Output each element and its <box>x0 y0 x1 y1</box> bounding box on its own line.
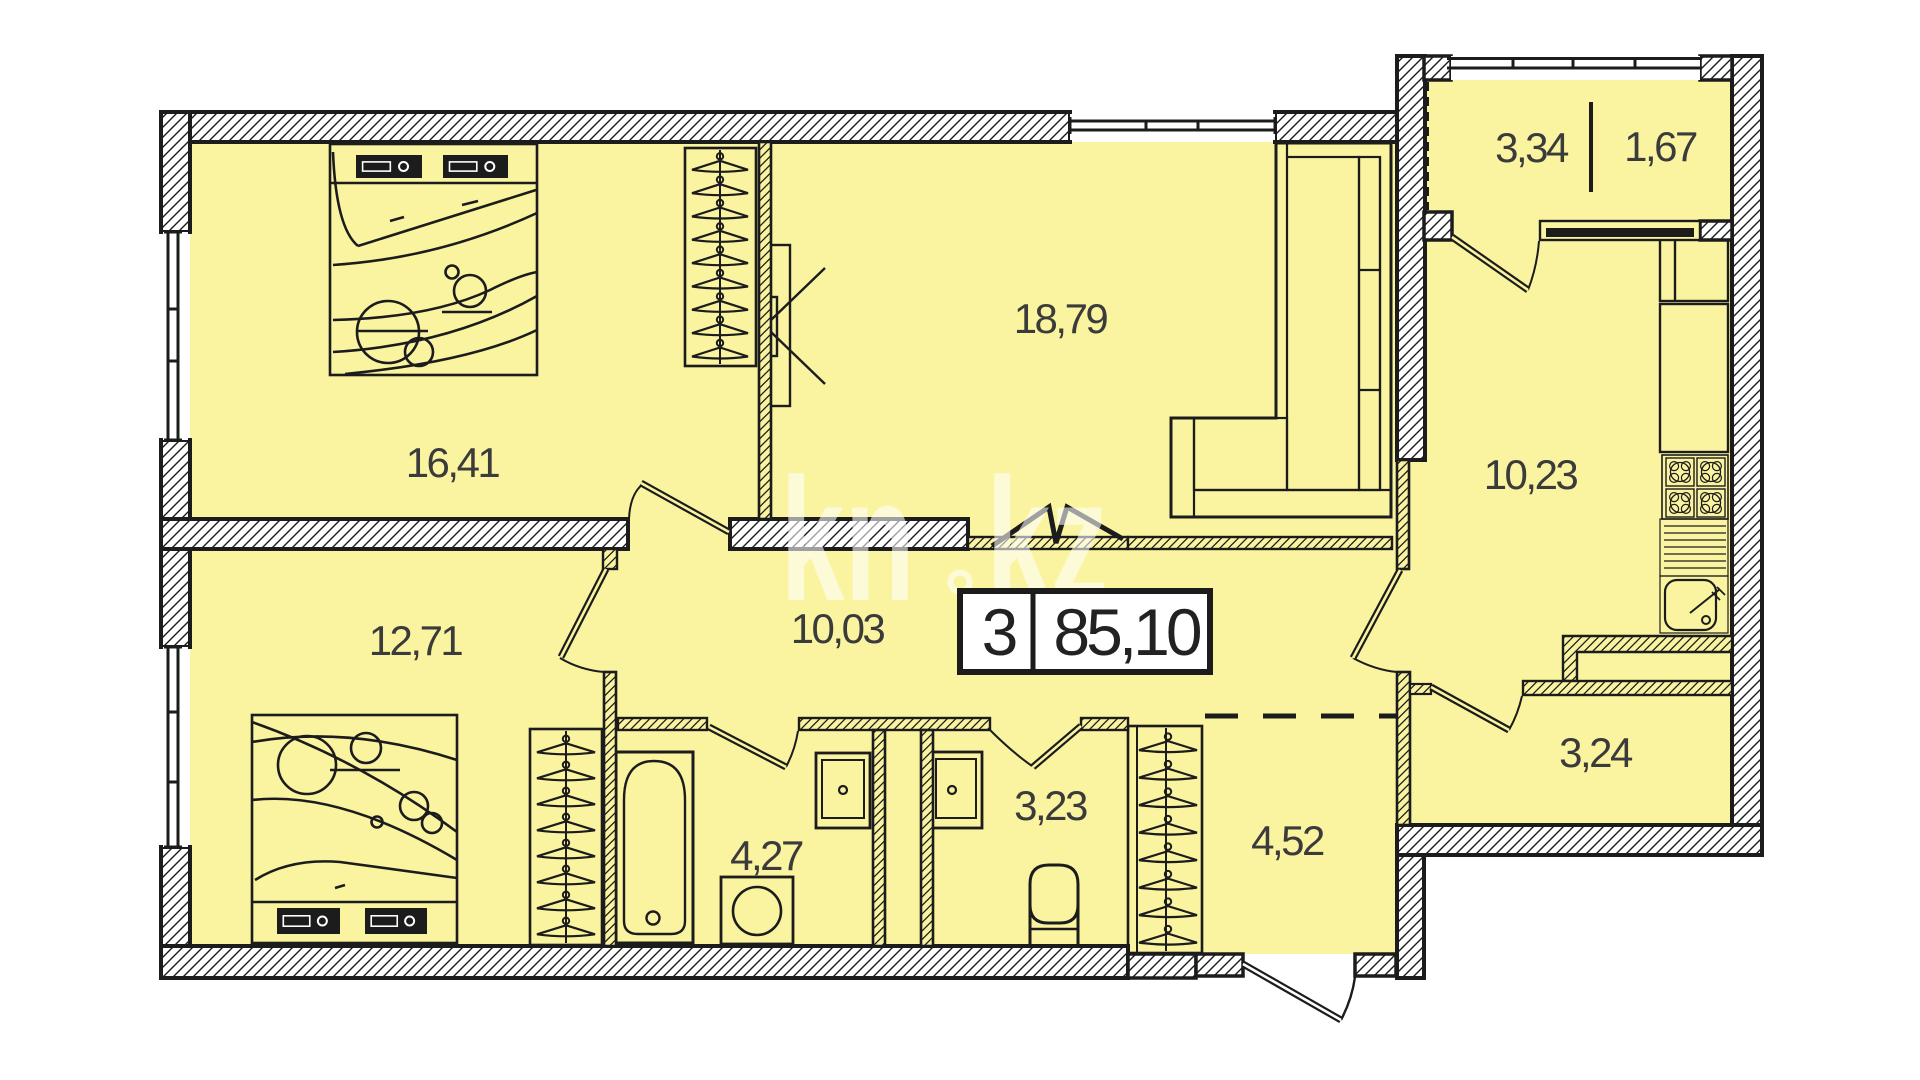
svg-text:16,41: 16,41 <box>406 439 500 486</box>
svg-text:10,23: 10,23 <box>1484 451 1578 498</box>
svg-text:12,71: 12,71 <box>369 617 463 664</box>
svg-text:3,34: 3,34 <box>1495 124 1569 171</box>
svg-text:3: 3 <box>982 595 1019 669</box>
svg-text:85,10: 85,10 <box>1053 595 1200 669</box>
svg-text:10,03: 10,03 <box>791 605 885 652</box>
svg-text:4,27: 4,27 <box>730 832 803 879</box>
svg-text:18,79: 18,79 <box>1014 295 1108 342</box>
svg-text:1,67: 1,67 <box>1624 123 1697 170</box>
svg-text:4,52: 4,52 <box>1251 817 1324 864</box>
svg-text:3,23: 3,23 <box>1014 782 1087 829</box>
svg-text:3,24: 3,24 <box>1559 729 1633 776</box>
